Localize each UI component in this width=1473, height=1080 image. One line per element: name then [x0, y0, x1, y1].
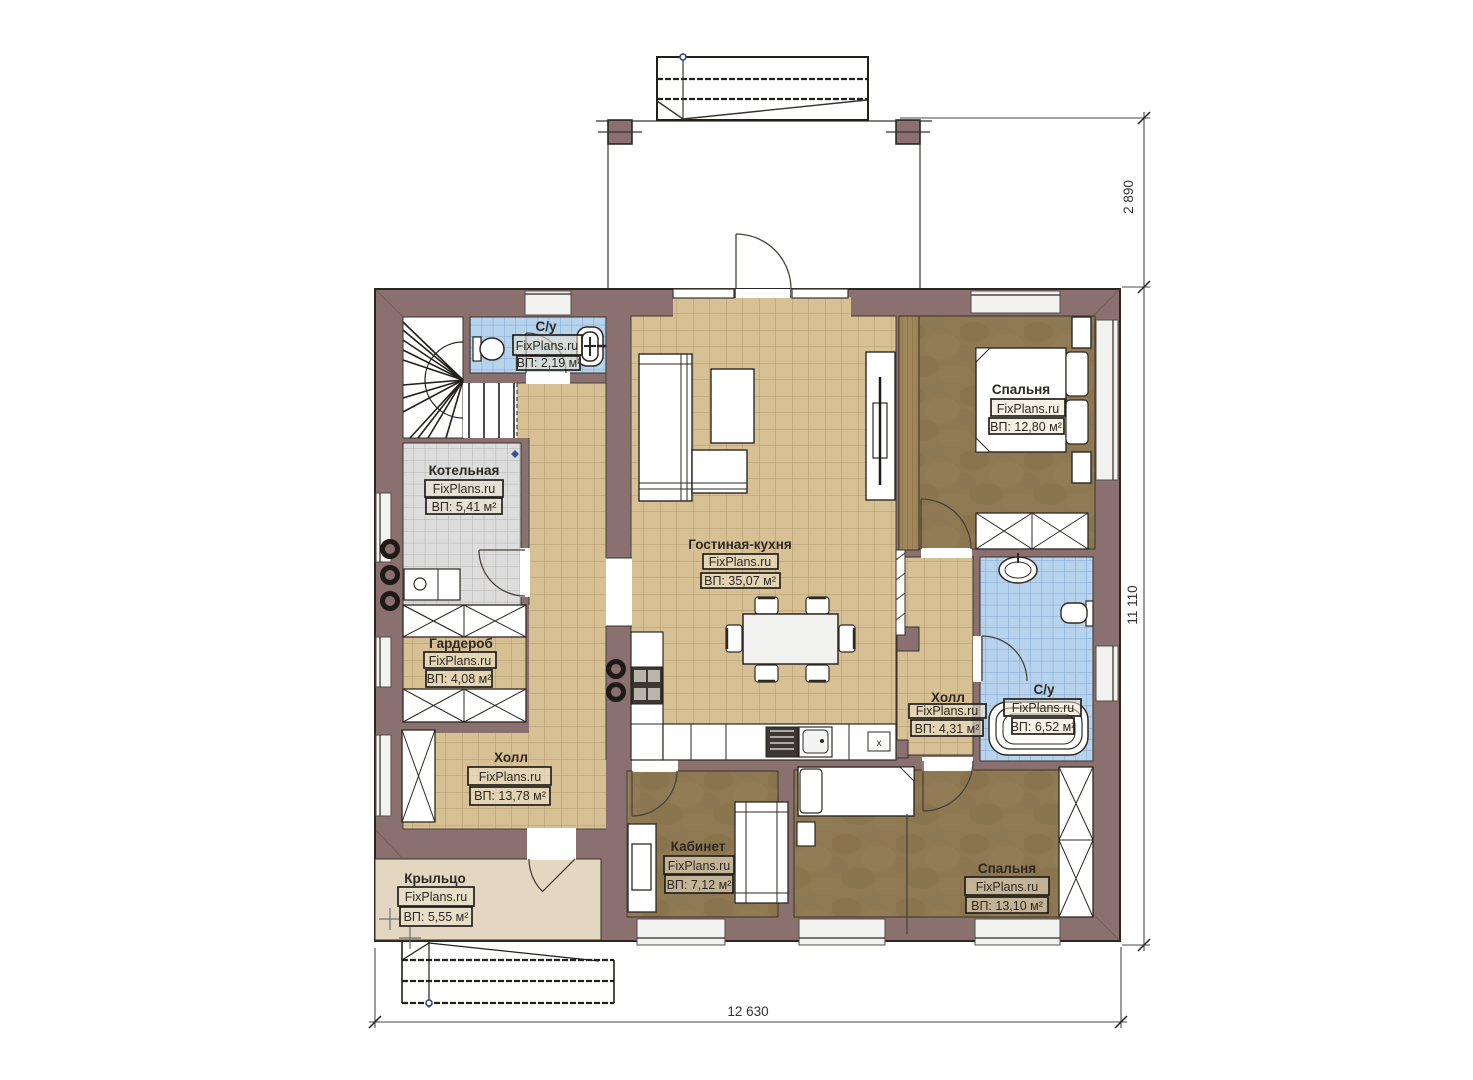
svg-text:ВП: 12,80 м²: ВП: 12,80 м² — [990, 420, 1062, 434]
svg-text:FixPlans.ru: FixPlans.ru — [405, 890, 468, 904]
svg-text:Кабинет: Кабинет — [671, 839, 726, 854]
svg-text:Котельная: Котельная — [429, 463, 500, 478]
svg-text:ВП: 13,78 м²: ВП: 13,78 м² — [474, 789, 546, 803]
svg-text:ВП: 5,41 м²: ВП: 5,41 м² — [432, 500, 497, 514]
svg-text:Гостиная-кухня: Гостиная-кухня — [688, 537, 791, 552]
svg-text:Спальня: Спальня — [978, 861, 1036, 876]
svg-text:FixPlans.ru: FixPlans.ru — [429, 654, 492, 668]
svg-text:FixPlans.ru: FixPlans.ru — [709, 555, 772, 569]
svg-text:ВП: 4,31 м²: ВП: 4,31 м² — [915, 722, 980, 736]
svg-text:FixPlans.ru: FixPlans.ru — [916, 704, 979, 718]
svg-text:ВП: 6,52 м²: ВП: 6,52 м² — [1011, 720, 1076, 734]
svg-text:FixPlans.ru: FixPlans.ru — [976, 880, 1039, 894]
svg-text:ВП: 7,12 м²: ВП: 7,12 м² — [667, 878, 732, 892]
svg-text:FixPlans.ru: FixPlans.ru — [433, 482, 496, 496]
svg-text:ВП: 2,19 м²: ВП: 2,19 м² — [517, 356, 582, 370]
svg-text:С/у: С/у — [535, 319, 557, 334]
svg-text:2 890: 2 890 — [1121, 180, 1136, 214]
svg-text:ВП: 4,08 м²: ВП: 4,08 м² — [427, 672, 492, 686]
svg-text:Спальня: Спальня — [992, 382, 1050, 397]
svg-text:FixPlans.ru: FixPlans.ru — [997, 402, 1060, 416]
svg-text:FixPlans.ru: FixPlans.ru — [1012, 701, 1075, 715]
svg-text:ВП: 5,55 м²: ВП: 5,55 м² — [404, 910, 469, 924]
svg-text:12 630: 12 630 — [727, 1004, 768, 1019]
svg-text:Холл: Холл — [494, 750, 528, 765]
svg-text:x: x — [877, 738, 882, 749]
svg-text:Холл: Холл — [931, 690, 965, 705]
svg-text:ВП: 35,07 м²: ВП: 35,07 м² — [704, 574, 776, 588]
svg-text:Гардероб: Гардероб — [429, 636, 493, 651]
svg-text:Крыльцо: Крыльцо — [404, 871, 465, 886]
svg-text:С/у: С/у — [1033, 682, 1055, 697]
svg-text:FixPlans.ru: FixPlans.ru — [516, 339, 579, 353]
svg-text:11 110: 11 110 — [1125, 585, 1140, 624]
svg-text:FixPlans.ru: FixPlans.ru — [668, 859, 731, 873]
svg-text:FixPlans.ru: FixPlans.ru — [479, 770, 542, 784]
svg-text:ВП: 13,10 м²: ВП: 13,10 м² — [971, 899, 1043, 913]
